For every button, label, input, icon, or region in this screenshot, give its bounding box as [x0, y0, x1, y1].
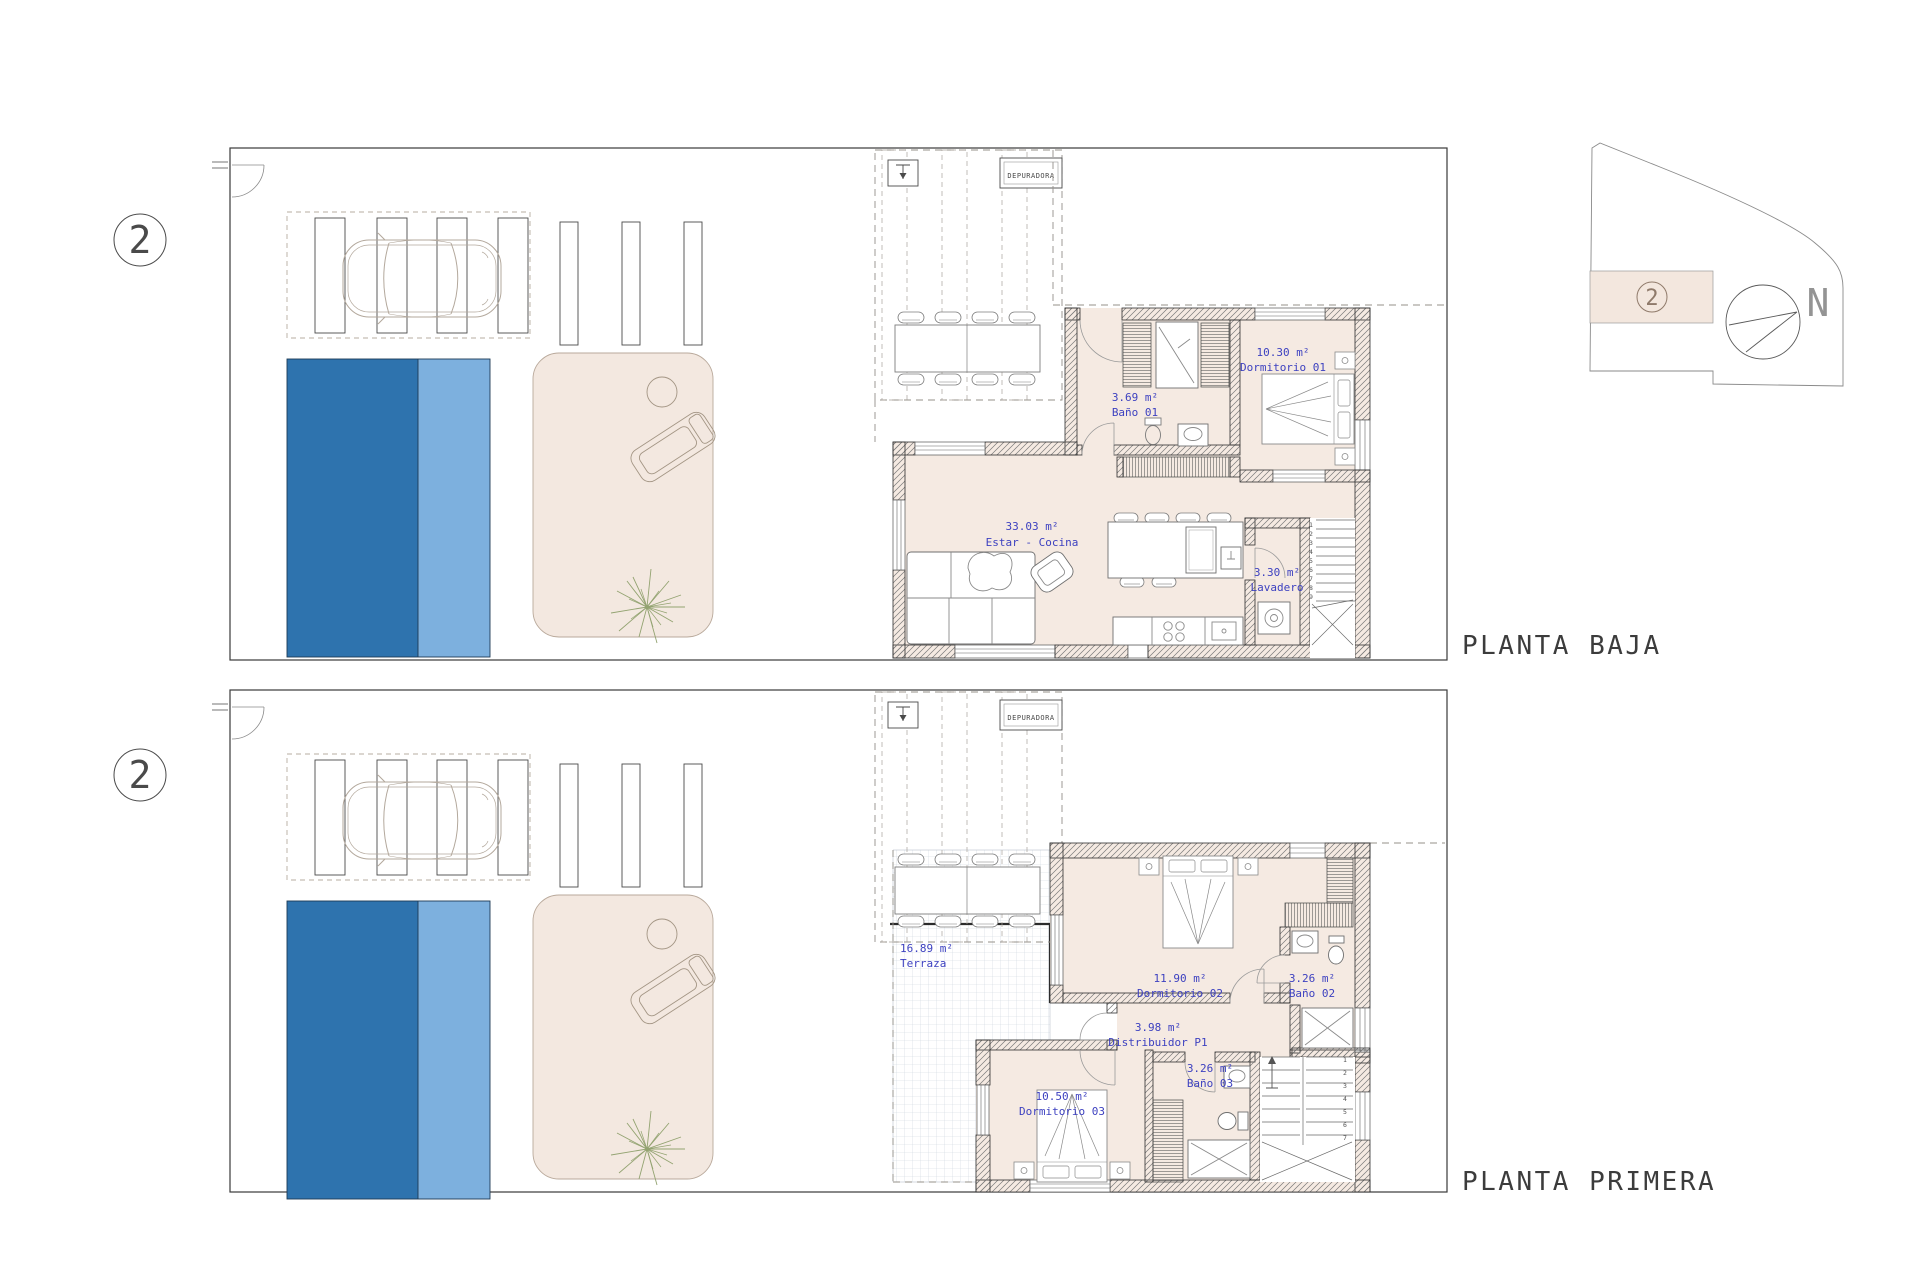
stairs: 1 2 3 4 5 6 7 [1260, 1056, 1355, 1182]
shower [1188, 1140, 1250, 1178]
stair-number: 1 [1309, 521, 1313, 529]
north-label: N [1807, 281, 1830, 325]
room-name: Baño 03 [1187, 1077, 1233, 1090]
toilet-icon [1329, 936, 1345, 964]
stair-number: 9 [1309, 593, 1313, 601]
site-key-plan: 2 N [1590, 143, 1843, 386]
stair-number: 5 [1343, 1108, 1347, 1116]
north-needle [1729, 312, 1797, 352]
stair-number: 2 [1309, 530, 1313, 538]
closet-icon [1201, 323, 1229, 387]
stair-number: 6 [1343, 1121, 1347, 1129]
stair-number: 3 [1343, 1082, 1347, 1090]
nightstand-icon [1335, 352, 1355, 369]
closet-icon [1123, 323, 1151, 387]
nightstand-icon [1238, 858, 1258, 875]
ground-floor-plan: 2 DEPURADORA [114, 148, 1662, 661]
stair-number: 1 [1343, 1056, 1347, 1064]
toilet-icon [1218, 1112, 1248, 1130]
laundry-room [1258, 602, 1290, 634]
nightstand-icon [1139, 858, 1159, 875]
shower [1302, 1008, 1353, 1048]
washing-machine-icon [1258, 602, 1290, 634]
bedroom-03 [1014, 1090, 1183, 1182]
room-name: Distribuidor P1 [1108, 1036, 1207, 1049]
stair-number: 6 [1309, 566, 1313, 574]
sink-icon [1178, 424, 1208, 446]
compass-icon [1726, 285, 1800, 359]
room-area: 10.50 m² [1036, 1090, 1089, 1103]
room-area: 3.26 m² [1289, 972, 1335, 985]
closet-icon [1285, 903, 1353, 927]
unit-number: 2 [129, 753, 152, 797]
plan-title: PLANTA PRIMERA [1462, 1167, 1716, 1197]
room-name: Baño 02 [1289, 987, 1335, 1000]
room-area: 3.98 m² [1135, 1021, 1181, 1034]
room-area: 3.26 m² [1187, 1062, 1233, 1075]
stair-number: 4 [1343, 1095, 1347, 1103]
room-name: Dormitorio 03 [1019, 1105, 1105, 1118]
room-area: 16.89 m² [900, 942, 953, 955]
bed-icon [1037, 1090, 1107, 1182]
stair-number: 5 [1309, 557, 1313, 565]
plan-title: PLANTA BAJA [1462, 631, 1662, 661]
nightstand-icon [1110, 1162, 1130, 1179]
plan-drawing: 2 DEPURADORA [0, 0, 1920, 1280]
room-name: Dormitorio 02 [1137, 987, 1223, 1000]
room-name: Lavadero [1251, 581, 1304, 594]
stair-number: 4 [1309, 548, 1313, 556]
closet-icon [1153, 1100, 1183, 1182]
closet-icon [1327, 858, 1353, 903]
first-floor-plan: 2 DEPURADORA [114, 690, 1716, 1199]
room-area: 11.90 m² [1154, 972, 1207, 985]
unit-number: 2 [1645, 286, 1658, 311]
stair-number: 2 [1343, 1069, 1347, 1077]
room-area: 33.03 m² [1006, 520, 1059, 533]
depuradora-label: DEPURADORA [1007, 714, 1054, 722]
nightstand-icon [1335, 448, 1355, 465]
depuradora-label: DEPURADORA [1007, 172, 1054, 180]
room-name: Estar - Cocina [986, 536, 1079, 549]
plot-outline [1590, 143, 1843, 386]
stair-number: 3 [1309, 539, 1313, 547]
room-name: Dormitorio 01 [1240, 361, 1326, 374]
room-area: 3.30 m² [1254, 566, 1300, 579]
wardrobe [1117, 457, 1240, 477]
room-area: 10.30 m² [1257, 346, 1310, 359]
room-name: Baño 01 [1112, 406, 1158, 419]
stairs: 1 2 3 4 5 6 7 8 9 [1309, 518, 1355, 658]
shower [1156, 322, 1198, 388]
dishwasher-icon [1186, 527, 1216, 573]
stair-number: 8 [1309, 584, 1313, 592]
stair-number: 7 [1309, 575, 1313, 583]
sink-icon [1292, 931, 1318, 953]
room-name: Terraza [900, 957, 946, 970]
floor-plan-sheet: 2 DEPURADORA [0, 0, 1920, 1280]
room-area: 3.69 m² [1112, 391, 1158, 404]
bed-icon [1163, 856, 1233, 948]
stair-number: 7 [1343, 1134, 1347, 1142]
bed-icon [1262, 374, 1354, 444]
nightstand-icon [1014, 1162, 1034, 1179]
unit-number: 2 [129, 218, 152, 262]
